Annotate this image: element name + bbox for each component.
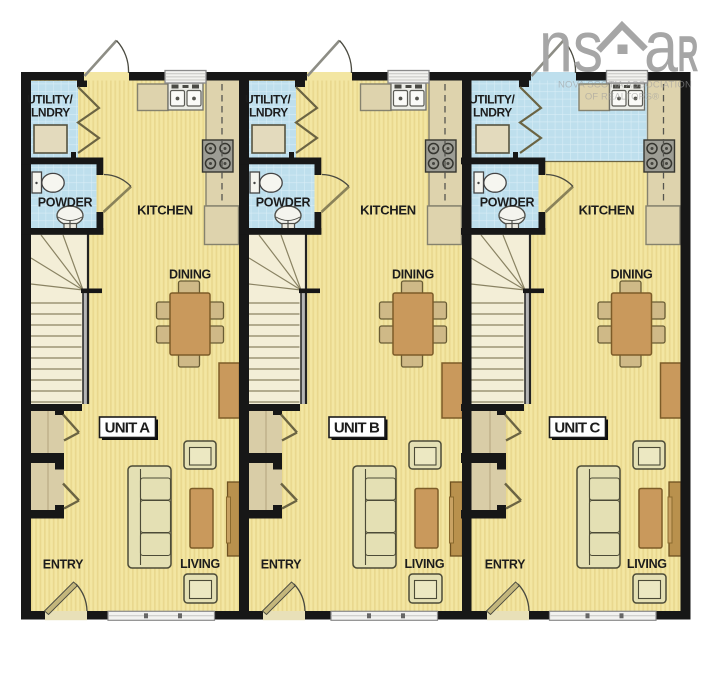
svg-text:UTILITY/: UTILITY/ (469, 93, 516, 107)
svg-text:a: a (644, 8, 679, 88)
svg-text:ENTRY: ENTRY (43, 558, 84, 572)
svg-text:POWDER: POWDER (38, 196, 93, 210)
svg-text:LNDRY: LNDRY (31, 106, 70, 120)
svg-text:UTILITY/: UTILITY/ (27, 93, 74, 107)
svg-text:DINING: DINING (169, 268, 211, 282)
svg-text:LNDRY: LNDRY (249, 106, 288, 120)
svg-text:LNDRY: LNDRY (473, 106, 512, 120)
svg-text:LIVING: LIVING (627, 557, 667, 571)
svg-text:UNIT A: UNIT A (105, 420, 151, 437)
svg-text:KITCHEN: KITCHEN (360, 203, 416, 218)
svg-text:ns: ns (539, 8, 603, 88)
svg-text:OF REALTORS®: OF REALTORS® (585, 92, 659, 103)
svg-text:UNIT B: UNIT B (334, 420, 380, 437)
svg-text:POWDER: POWDER (480, 196, 535, 210)
svg-text:R: R (678, 26, 699, 83)
svg-text:DINING: DINING (611, 268, 653, 282)
svg-text:KITCHEN: KITCHEN (579, 203, 635, 218)
svg-text:UTILITY/: UTILITY/ (245, 93, 292, 107)
svg-text:KITCHEN: KITCHEN (137, 203, 193, 218)
svg-text:NOVA SCOTIA ASSOCIATION: NOVA SCOTIA ASSOCIATION (558, 80, 692, 91)
svg-text:LIVING: LIVING (404, 557, 444, 571)
svg-text:DINING: DINING (392, 268, 434, 282)
svg-text:LIVING: LIVING (180, 557, 220, 571)
svg-text:ENTRY: ENTRY (485, 558, 526, 572)
svg-text:UNIT C: UNIT C (554, 420, 600, 437)
svg-text:POWDER: POWDER (256, 196, 311, 210)
svg-text:ENTRY: ENTRY (261, 558, 302, 572)
